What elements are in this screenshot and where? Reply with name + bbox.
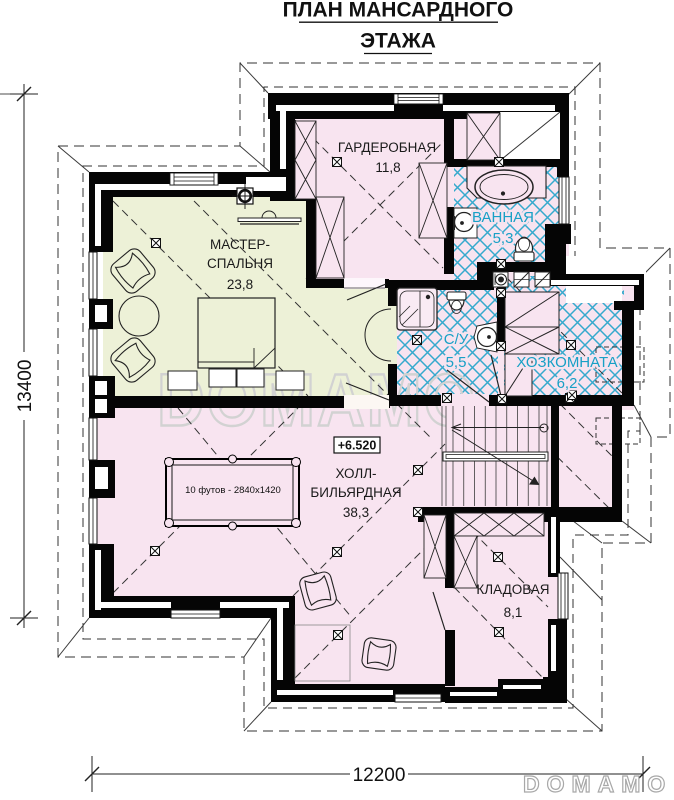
svg-text:38,3: 38,3 [343,505,369,520]
svg-text:5,3: 5,3 [493,230,514,247]
svg-text:DOMAMO: DOMAMO [523,771,672,797]
svg-text:5,5: 5,5 [446,354,467,371]
svg-text:МАСТЕР-: МАСТЕР- [210,237,270,252]
svg-text:ЭТАЖА: ЭТАЖА [360,30,436,53]
svg-text:СПАЛЬНЯ: СПАЛЬНЯ [207,256,273,271]
svg-text:13400: 13400 [15,360,36,413]
svg-text:ХОЛЛ-: ХОЛЛ- [335,466,376,481]
svg-text:10 футов - 2840х1420: 10 футов - 2840х1420 [185,485,281,496]
svg-text:ПЛАН МАНСАРДНОГО: ПЛАН МАНСАРДНОГО [283,0,514,22]
svg-text:6,2: 6,2 [557,375,578,392]
svg-text:С/У: С/У [444,331,469,348]
svg-text:23,8: 23,8 [227,277,253,292]
svg-text:БИЛЬЯРДНАЯ: БИЛЬЯРДНАЯ [310,485,401,500]
svg-text:8,1: 8,1 [504,605,523,620]
svg-text:11,8: 11,8 [375,160,400,175]
svg-text:ХОЗКОМНАТА: ХОЗКОМНАТА [516,354,617,371]
svg-text:12200: 12200 [353,765,406,786]
svg-text:ВАННАЯ: ВАННАЯ [472,209,534,226]
svg-text:ГАРДЕРОБНАЯ: ГАРДЕРОБНАЯ [338,140,436,155]
svg-text:+6.520: +6.520 [338,439,377,453]
svg-text:КЛАДОВАЯ: КЛАДОВАЯ [476,582,549,597]
